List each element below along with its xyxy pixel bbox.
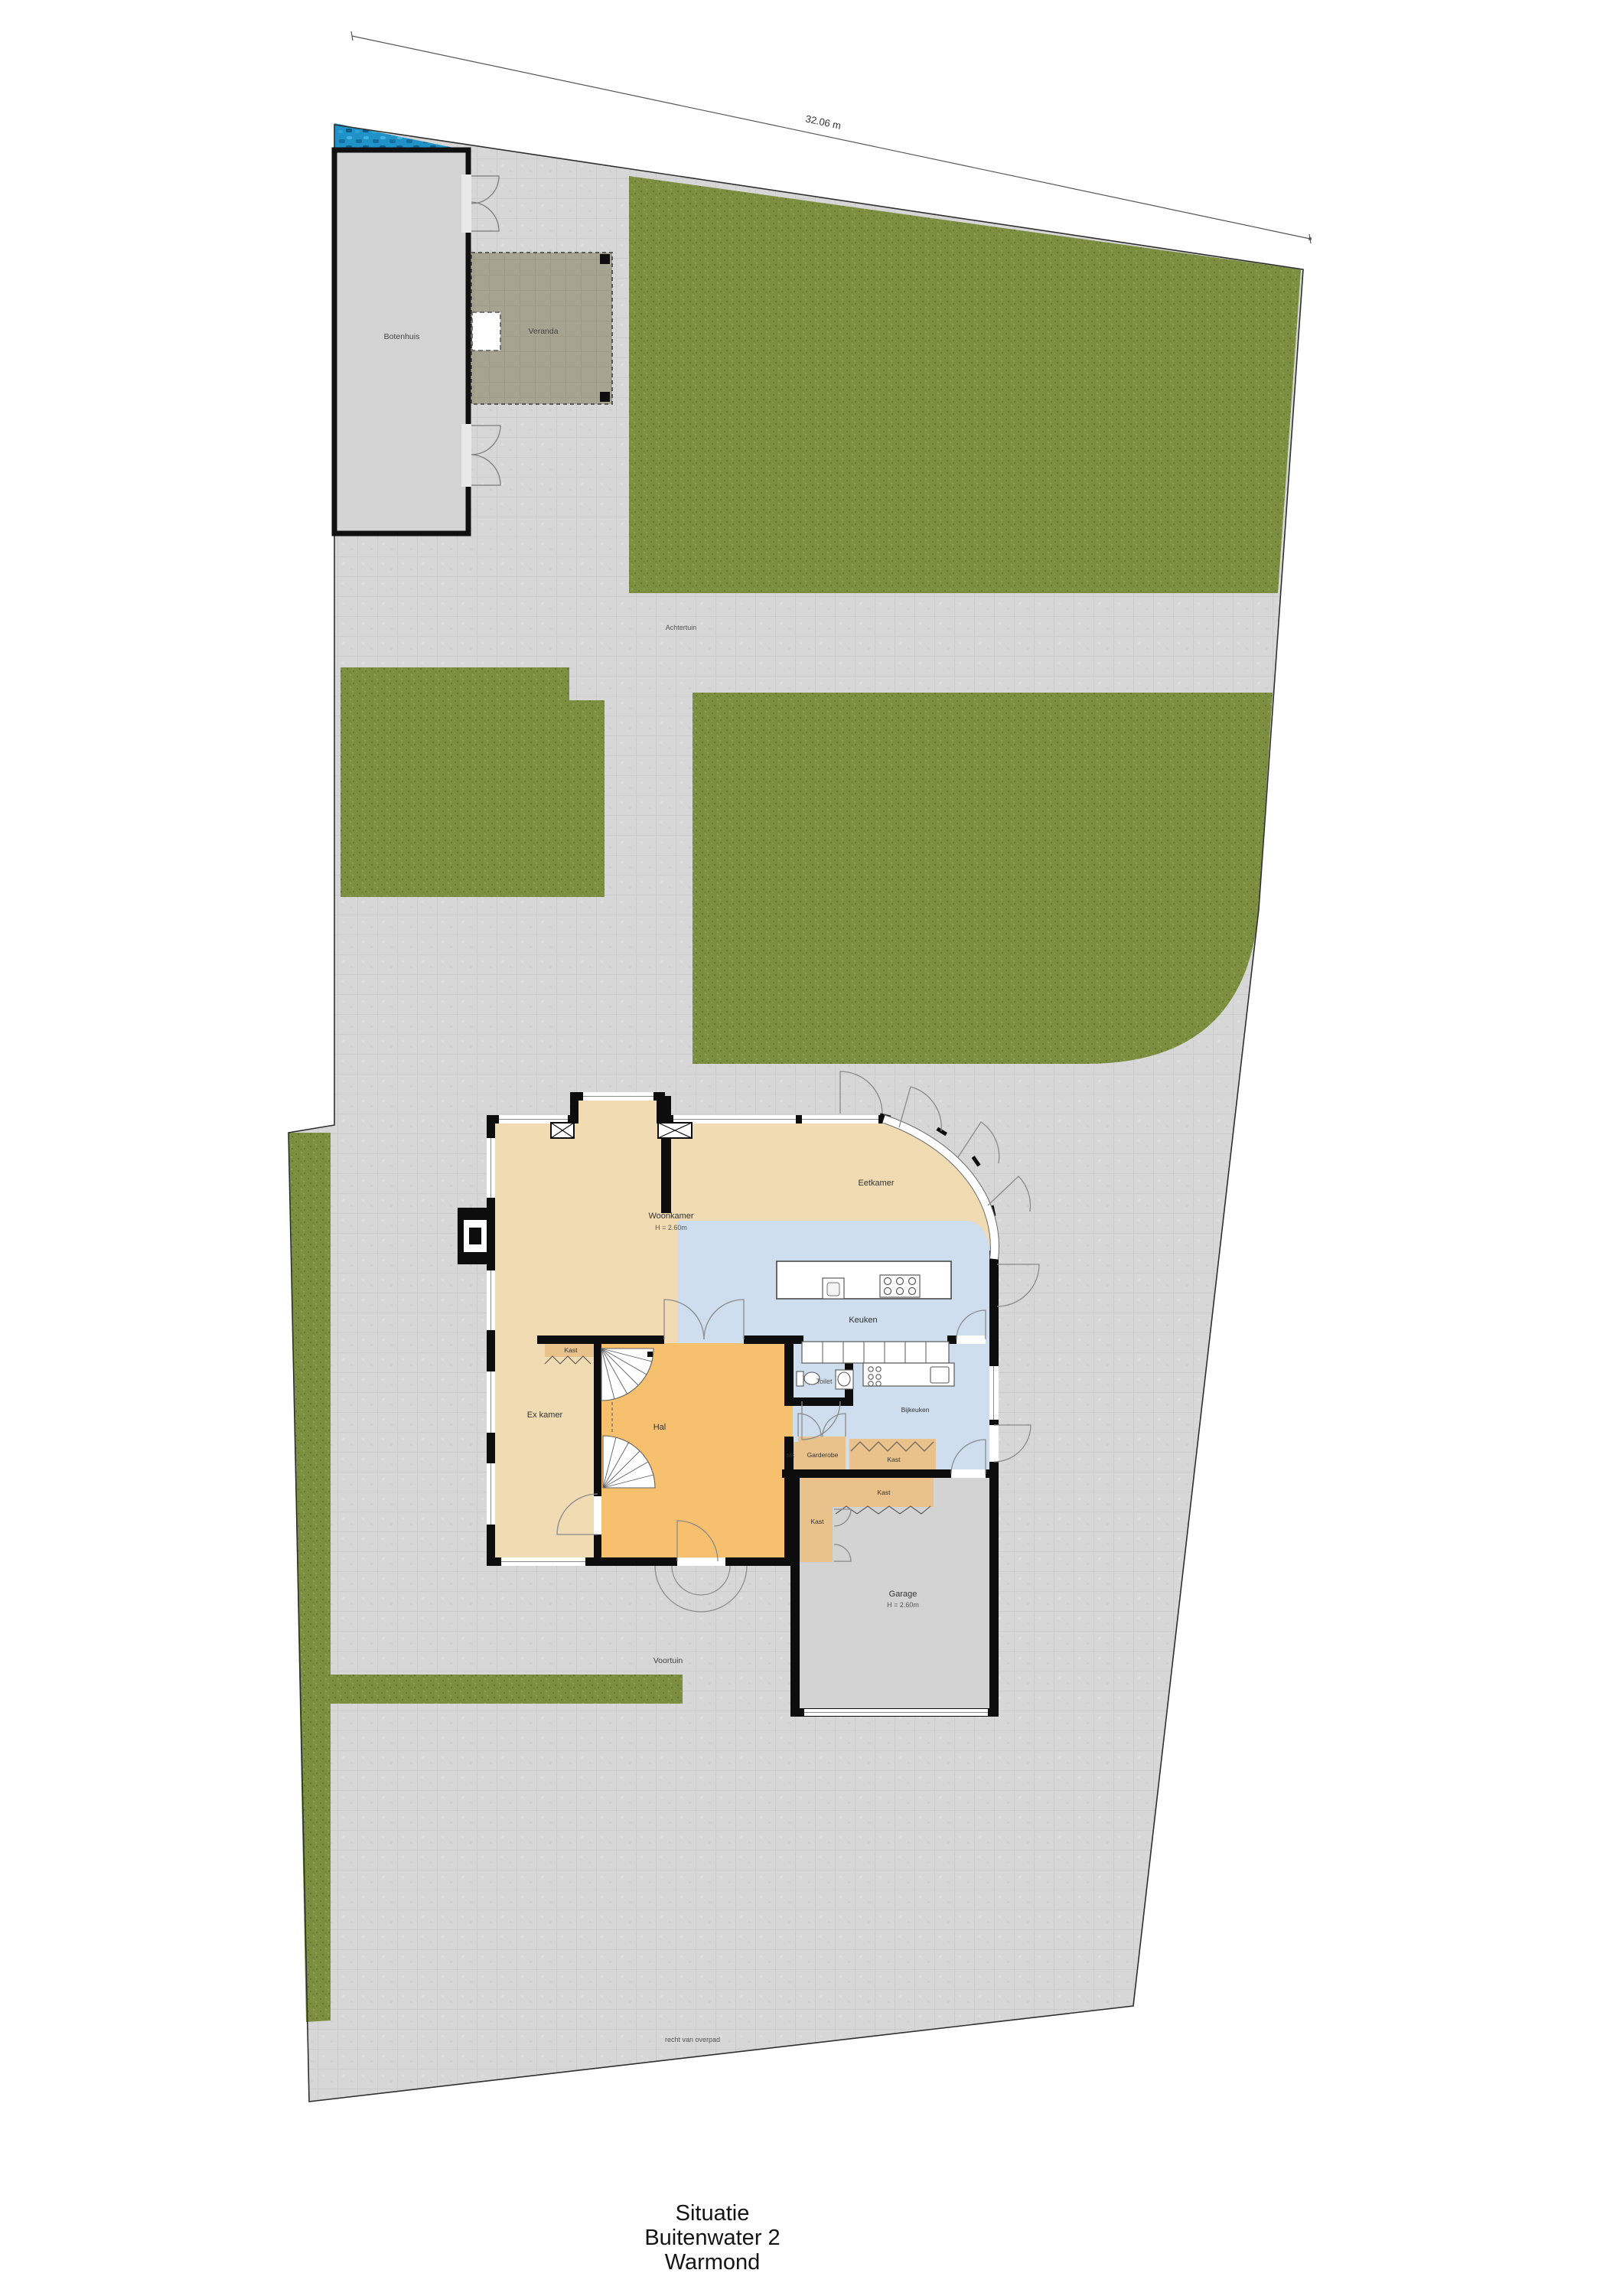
mk-label: Mk xyxy=(787,1452,794,1459)
title-line-2: Buitenwater 2 xyxy=(644,2226,780,2250)
veranda-post-bottom xyxy=(600,392,610,402)
island-hob xyxy=(880,1275,920,1297)
title-line-3: Warmond xyxy=(665,2250,761,2275)
kast-garage-top-label: Kast xyxy=(877,1489,891,1496)
eetkamer-label: Eetkamer xyxy=(858,1179,894,1188)
keuken-label: Keuken xyxy=(849,1316,877,1325)
botenhuis-label: Botenhuis xyxy=(384,332,420,341)
hal-label: Hal xyxy=(653,1423,666,1432)
fireplace-core xyxy=(469,1228,481,1244)
ex-kamer-label: Ex kamer xyxy=(527,1411,563,1420)
veranda-label: Veranda xyxy=(528,327,558,336)
woonkamer-label: Woonkamer xyxy=(648,1212,693,1221)
woonkamer-height-label: H = 2.60m xyxy=(655,1224,687,1231)
room-ex-kamer xyxy=(490,1343,598,1562)
situatie-floor-plan: Botenhuis Veranda xyxy=(0,0,1623,2296)
title-line-1: Situatie xyxy=(676,2201,750,2226)
garage-label: Garage xyxy=(889,1590,917,1599)
achtertuin-label: Achtertuin xyxy=(666,624,697,631)
easement-label: recht van overpad xyxy=(665,2036,720,2043)
grass-front-strip xyxy=(331,1675,683,1704)
grass-middle-right xyxy=(693,693,1273,1064)
voortuin-label: Voortuin xyxy=(653,1656,683,1665)
situatie-page: Botenhuis Veranda xyxy=(0,0,1623,2296)
toilet-label: Toilet xyxy=(816,1378,833,1385)
title-block: Situatie Buitenwater 2 Warmond xyxy=(644,2201,780,2275)
bijkeuken-label: Bijkeuken xyxy=(901,1406,930,1414)
grass-top-right xyxy=(629,176,1301,593)
veranda-post-top xyxy=(600,254,610,264)
kast-hal-label: Kast xyxy=(564,1346,578,1354)
garderobe-label: Garderobe xyxy=(807,1451,839,1459)
veranda-storage-box xyxy=(472,312,500,351)
dimension-label: 32.06 m xyxy=(804,113,842,131)
kitchen-island xyxy=(777,1261,951,1299)
kast-bijkeuken-label: Kast xyxy=(887,1456,901,1463)
grass-left-strip xyxy=(288,1133,331,2022)
garage-height-label: H = 2.60m xyxy=(887,1601,919,1609)
kast-garage-left-label: Kast xyxy=(810,1518,824,1525)
grass-left-block-notch xyxy=(569,666,605,700)
veranda-structure: Veranda xyxy=(471,253,612,404)
grass-left-block xyxy=(341,667,605,897)
